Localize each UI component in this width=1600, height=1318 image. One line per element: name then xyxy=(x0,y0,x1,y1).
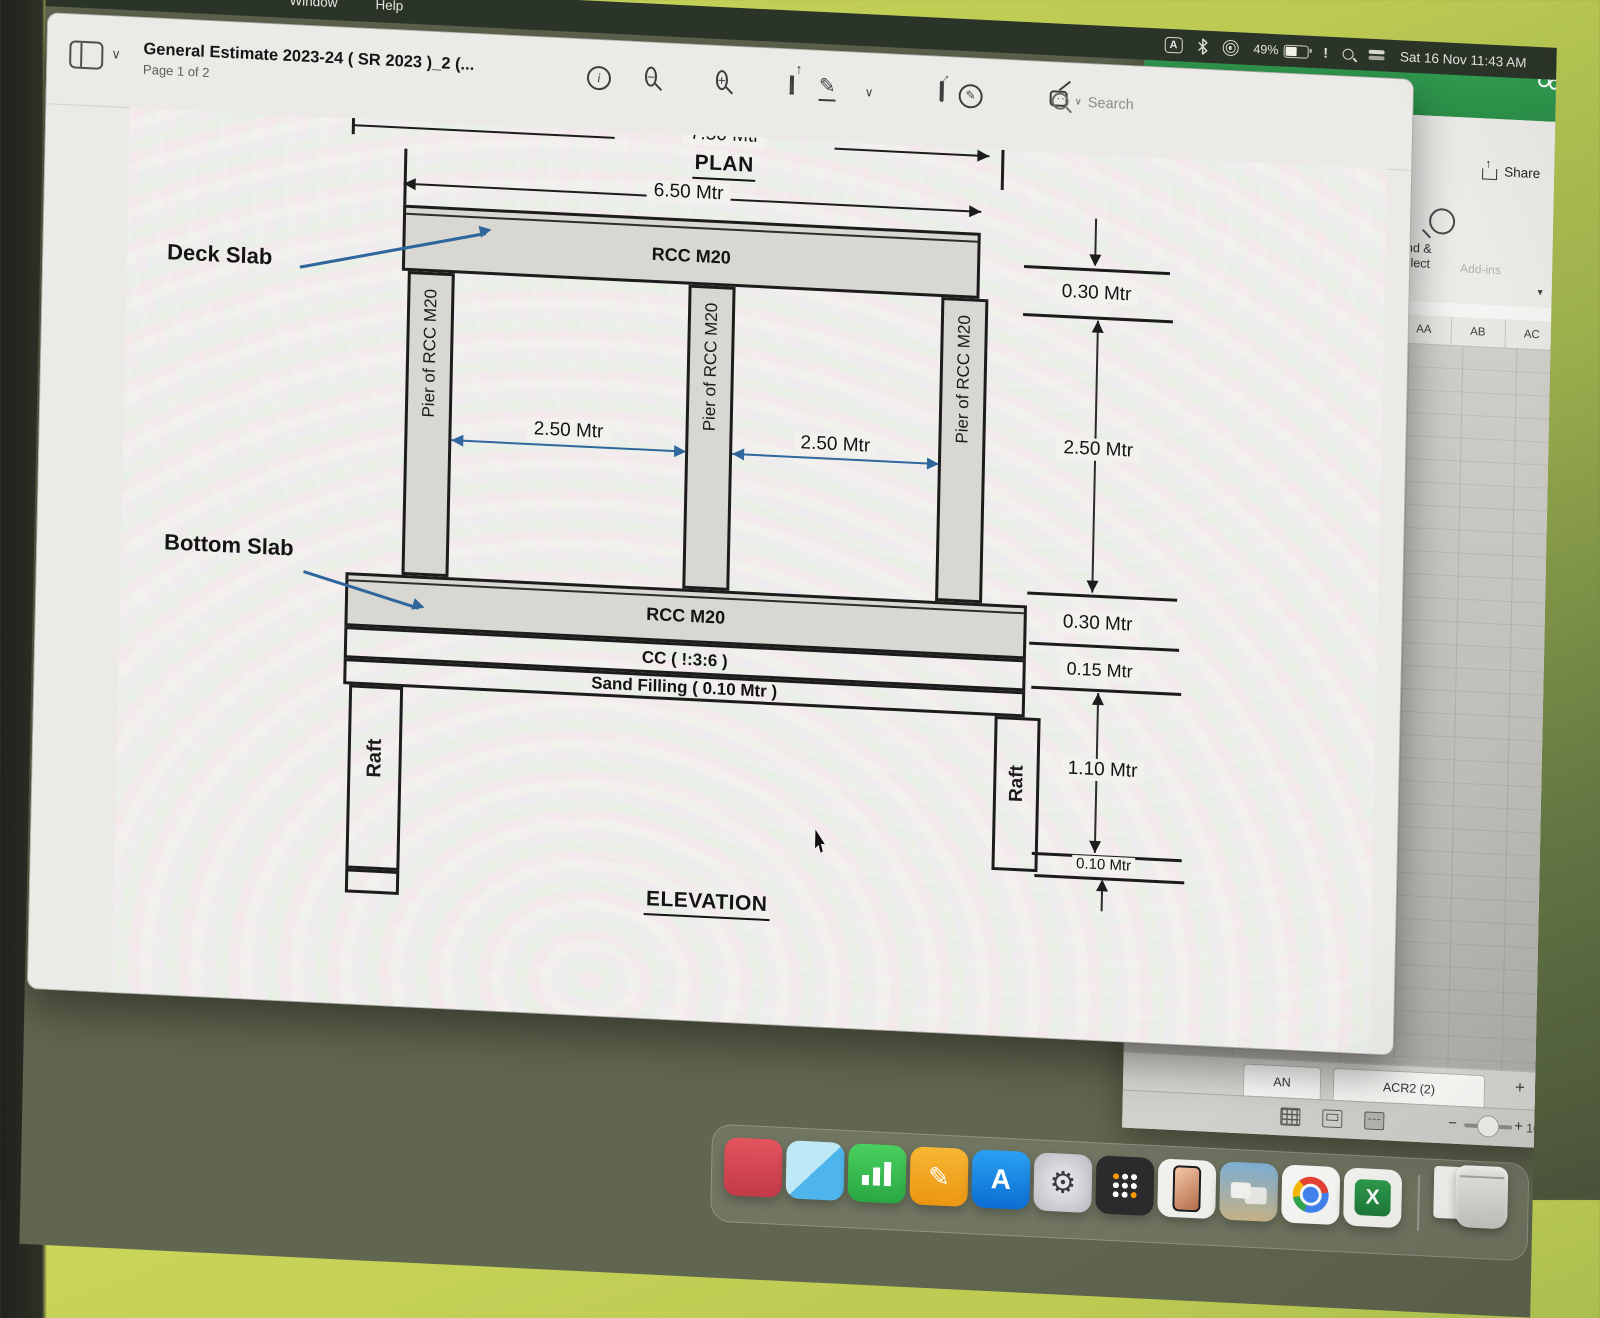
chain-hline7 xyxy=(1034,874,1184,884)
page-break-view-button[interactable] xyxy=(1364,1111,1384,1130)
input-source-icon[interactable]: A xyxy=(1164,37,1182,54)
battery-icon xyxy=(1283,44,1308,58)
chain-250-head-down xyxy=(1086,580,1098,593)
zoom-in-control[interactable]: + xyxy=(1514,1118,1523,1135)
engineering-drawing: 7.50 Mtr PLAN 6.50 Mtr RCC M20 Pier of R… xyxy=(112,107,1388,1053)
laptop-screen: Window Help A 49% ! Sat 16 Nov 11:43 AM xyxy=(19,0,1556,1318)
dim-110-label: 1.10 Mtr xyxy=(1061,757,1145,783)
markup-pencil-button[interactable]: ✎ xyxy=(819,73,836,102)
raft-right: Raft xyxy=(991,716,1040,872)
dock-red-app-icon[interactable] xyxy=(724,1137,783,1198)
span-dim-left-arrow-l xyxy=(451,434,463,447)
dim-015-label: 0.15 Mtr xyxy=(1059,658,1139,683)
gear-glyph: ⚙ xyxy=(1049,1165,1077,1201)
raft-left-label: Raft xyxy=(363,738,387,778)
dim-650-arrow-left xyxy=(404,178,416,191)
document-page[interactable]: 7.50 Mtr PLAN 6.50 Mtr RCC M20 Pier of R… xyxy=(112,107,1388,1053)
info-button[interactable]: i xyxy=(587,66,611,91)
mouse-cursor xyxy=(815,829,832,854)
pier-middle-label: Pier of RCC M20 xyxy=(700,302,723,431)
zoom-slider-knob[interactable] xyxy=(1477,1115,1499,1138)
dim-250-vert-label: 2.50 Mtr xyxy=(1056,437,1140,463)
search-placeholder: Search xyxy=(1088,95,1134,113)
chain-arrow1-head xyxy=(1089,254,1101,267)
span-dim-right-arrow-l xyxy=(732,448,744,461)
addins-label[interactable]: Add-ins xyxy=(1460,261,1501,277)
screen-mirroring-icon[interactable] xyxy=(1222,40,1238,57)
span-dim-left-label: 2.50 Mtr xyxy=(526,418,610,444)
span-dim-right-label: 2.50 Mtr xyxy=(793,432,877,458)
dim-010-label: 0.10 Mtr xyxy=(1072,855,1135,875)
pier-left: Pier of RCC M20 xyxy=(401,271,454,577)
markup-chevron-icon[interactable]: ∨ xyxy=(865,85,874,99)
battery-indicator[interactable]: 49% xyxy=(1253,42,1308,59)
raft-left: Raft xyxy=(345,684,403,871)
sign-button[interactable]: ✎ xyxy=(958,84,982,109)
battery-fill xyxy=(1285,46,1296,56)
sidebar-toggle-button[interactable] xyxy=(69,40,104,70)
dock-pencil-app-icon[interactable]: ✎ xyxy=(909,1146,968,1207)
dock-separator xyxy=(1417,1175,1420,1231)
document-title-block: General Estimate 2023-24 ( SR 2023 )_2 (… xyxy=(143,40,475,93)
dock-trash-icon[interactable] xyxy=(1455,1165,1508,1230)
preview-window: ∨ General Estimate 2023-24 ( SR 2023 )_2… xyxy=(27,12,1414,1056)
add-sheet-button[interactable]: + xyxy=(1515,1078,1525,1098)
chain-hline5 xyxy=(1031,686,1181,696)
search-chevron-icon: ∨ xyxy=(1074,96,1082,107)
dock-app-store-icon[interactable]: A xyxy=(971,1149,1030,1210)
search-field[interactable]: ∨ Search xyxy=(1051,92,1134,113)
dim-650-label: 6.50 Mtr xyxy=(647,180,731,206)
calculator-dots-glyph xyxy=(1112,1172,1139,1199)
column-header-ac[interactable]: AC xyxy=(1504,320,1556,351)
chain-010-arrow-head xyxy=(1096,879,1108,892)
alert-menu-icon[interactable]: ! xyxy=(1323,44,1328,60)
chain-110-head-down xyxy=(1089,841,1101,854)
dock-stocks-icon[interactable] xyxy=(847,1143,906,1204)
dim-750-line-right xyxy=(834,148,989,158)
share-label: Share xyxy=(1504,164,1540,181)
dock-excel-icon[interactable]: X xyxy=(1343,1167,1402,1228)
share-button[interactable]: Share xyxy=(1482,162,1540,182)
column-header-ab[interactable]: AB xyxy=(1451,317,1507,348)
pier-right-label: Pier of RCC M20 xyxy=(952,315,975,444)
dock-calculator-icon[interactable] xyxy=(1095,1155,1154,1216)
share-icon xyxy=(1482,168,1497,180)
windows-thumbs-glyph xyxy=(1228,1176,1269,1208)
deck-slab-callout: Deck Slab xyxy=(167,239,273,270)
spotlight-icon[interactable] xyxy=(1343,48,1354,60)
dock-chrome-icon[interactable] xyxy=(1281,1164,1340,1225)
menu-clock[interactable]: Sat 16 Nov 11:43 AM xyxy=(1400,49,1527,70)
menu-help[interactable]: Help xyxy=(375,0,403,13)
span-dim-right-arrow-r xyxy=(927,457,939,470)
bluetooth-icon[interactable] xyxy=(1197,38,1207,54)
chain-hline4 xyxy=(1029,642,1179,652)
dim-030-mid-label: 0.30 Mtr xyxy=(1056,611,1140,637)
dock: ✎ A ⚙ X xyxy=(710,1123,1529,1261)
dim-030-top-label: 0.30 Mtr xyxy=(1054,281,1138,307)
search-icon xyxy=(1051,92,1068,110)
control-center-icon[interactable] xyxy=(1369,49,1385,61)
pencil-glyph: ✎ xyxy=(928,1161,950,1193)
pier-middle: Pier of RCC M20 xyxy=(682,285,735,591)
zoom-percent-label: 100 xyxy=(1526,1121,1547,1136)
plan-title: PLAN xyxy=(692,151,756,182)
appstore-glyph: A xyxy=(991,1163,1012,1196)
dim-650-arrow-right xyxy=(969,205,981,218)
chain-110-head-up xyxy=(1092,693,1104,706)
share-button-preview[interactable] xyxy=(790,75,794,94)
rotate-button[interactable] xyxy=(940,81,944,102)
find-select-icon[interactable] xyxy=(1429,208,1456,235)
chain-250-head-up xyxy=(1092,320,1104,333)
chrome-ball-glyph xyxy=(1292,1176,1329,1214)
excel-x-glyph: X xyxy=(1354,1179,1391,1217)
phone-glyph xyxy=(1172,1165,1201,1212)
ribbon-collapse-icon[interactable]: ▼ xyxy=(1536,287,1545,297)
normal-view-button[interactable] xyxy=(1280,1107,1300,1126)
dock-iphone-mirroring-icon[interactable] xyxy=(1157,1158,1216,1219)
bottom-slab-callout: Bottom Slab xyxy=(164,529,294,561)
dock-maps-icon[interactable] xyxy=(786,1140,845,1201)
elevation-title: ELEVATION xyxy=(644,887,770,921)
chain-hline3 xyxy=(1027,591,1177,601)
menu-window[interactable]: Window xyxy=(289,0,337,10)
dock-settings-icon[interactable]: ⚙ xyxy=(1033,1152,1092,1213)
deck-slab-label: RCC M20 xyxy=(405,232,977,281)
pier-left-label: Pier of RCC M20 xyxy=(419,289,442,418)
pier-right: Pier of RCC M20 xyxy=(935,297,988,603)
stocks-bars-glyph xyxy=(862,1161,892,1186)
zoom-out-button[interactable]: − xyxy=(645,66,658,87)
deck-slab-leader-arrow xyxy=(479,224,493,238)
span-dim-left-arrow-r xyxy=(674,445,686,458)
raft-right-label: Raft xyxy=(1006,765,1029,803)
battery-percent-label: 49% xyxy=(1253,42,1278,57)
raft-left-footing xyxy=(345,868,399,895)
zoom-out-control[interactable]: − xyxy=(1448,1114,1457,1131)
zoom-in-button[interactable]: + xyxy=(715,70,728,91)
dock-desktop-windows-icon[interactable] xyxy=(1219,1161,1278,1222)
dim-750-arrow-right xyxy=(977,150,989,163)
sidebar-chevron-icon[interactable]: ∨ xyxy=(111,46,121,62)
page-layout-view-button[interactable] xyxy=(1322,1109,1342,1128)
